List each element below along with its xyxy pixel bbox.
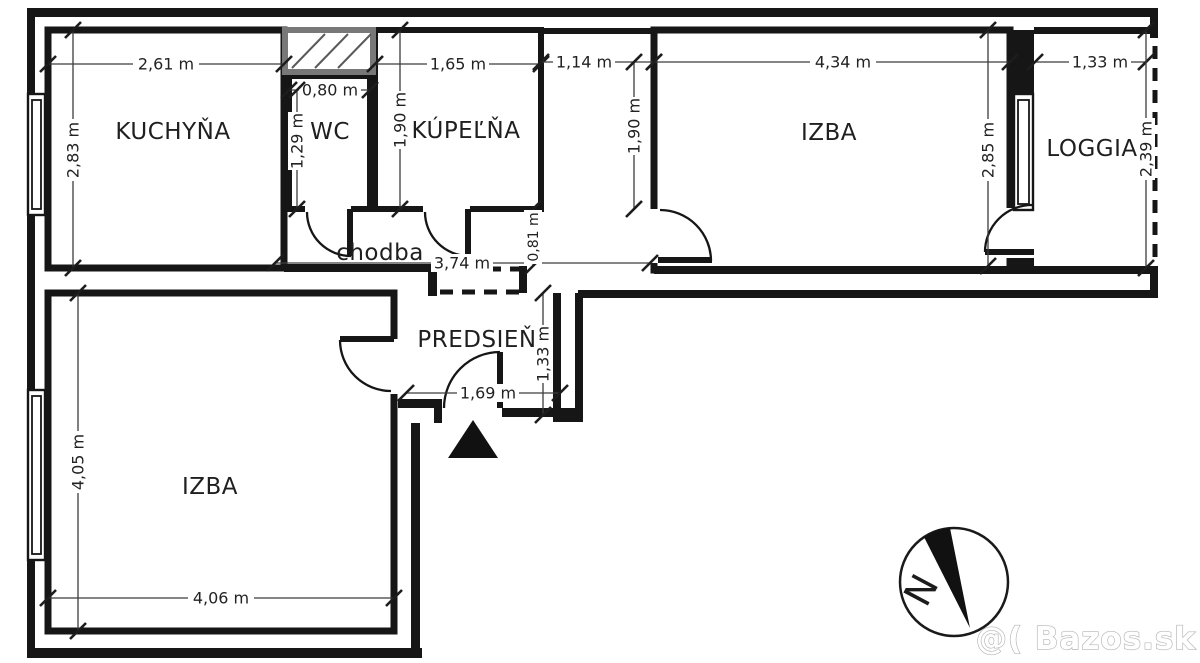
dim-label: 1,33 m (1072, 53, 1128, 72)
dim-label: 4,34 m (815, 53, 871, 72)
room-label-kupelna: KÚPEĽŇA (412, 116, 521, 144)
dim-kupelna-height: 1,90 m (391, 22, 410, 217)
izba-dolna-door-swing-arc (340, 340, 391, 391)
izba-dolna-door (340, 336, 394, 391)
dim-chodba-width: 0,81 m (524, 201, 542, 274)
dim-label: 1,90 m (391, 92, 410, 148)
watermark-text: @( Bazos.sk (976, 621, 1197, 657)
dim-label: 1,90 m (625, 98, 644, 154)
room-label-izba-horna: IZBA (801, 120, 857, 146)
izba-dolna-window-glass (32, 396, 41, 554)
dim-label: 3,74 m (434, 254, 490, 273)
entrance-arrow (448, 420, 498, 458)
north-compass: N (895, 528, 1008, 636)
kupelna-door-opening (423, 203, 470, 214)
wc-door-opening (305, 203, 351, 214)
dim-label: 2,83 m (64, 122, 83, 178)
floor-plan-page: 2,61 m 2,83 m 0,80 m 1,29 m 1,65 m (0, 0, 1200, 663)
dim-loggia-height: 2,39 m (1137, 22, 1156, 276)
kupelna-door-leaf (465, 209, 471, 256)
izba-horna-door-leaf (658, 257, 712, 263)
dim-kuchyna-width: 2,61 m (40, 55, 292, 74)
izba-dolna-window (28, 390, 45, 560)
dim-label: 0,81 m (526, 212, 542, 261)
room-izba-dolna-outline (48, 293, 394, 631)
doors (307, 205, 1034, 408)
dim-loggia-width: 1,33 m (1027, 53, 1154, 72)
dim-label: 1,29 m (288, 113, 307, 169)
room-label-chodba: chodba (336, 240, 424, 266)
loggia-window-glass (1018, 100, 1029, 204)
dim-koridor-width: 1,14 m (533, 53, 662, 72)
dim-koridor-height: 1,90 m (625, 54, 644, 217)
loggia-door-leaf (985, 249, 1034, 255)
izba-dolna-door-opening (386, 339, 398, 394)
dim-kupelna-width: 1,65 m (367, 55, 549, 74)
izba-horna-door (658, 210, 712, 263)
dim-label: 1,65 m (430, 55, 486, 74)
dim-label: 4,05 m (69, 434, 88, 490)
room-label-kuchyna: KUCHYŇA (115, 117, 230, 145)
installation-shaft (285, 30, 373, 72)
shaft-box (285, 30, 373, 72)
room-label-izba-dolna: IZBA (182, 474, 238, 500)
room-label-loggia: LOGGIA (1046, 136, 1137, 162)
dim-label: 1,69 m (460, 384, 516, 403)
dim-kuchyna-height: 2,83 m (64, 22, 83, 276)
dim-label: 2,61 m (138, 55, 194, 74)
dim-predsien-height: 1,33 m (534, 285, 553, 423)
izba-horna-door-swing-arc (660, 210, 711, 261)
door-openings (305, 203, 1036, 394)
dim-izba-horna-height: 2,85 m (979, 22, 998, 274)
room-label-wc: WC (310, 119, 350, 145)
dim-label: 2,39 m (1137, 121, 1156, 177)
dim-izba-dolna-width: 4,06 m (40, 589, 402, 608)
kupelna-door-swing-arc (425, 212, 469, 256)
dim-label: 0,80 m (302, 81, 358, 100)
kuchyna-window-glass (32, 100, 41, 209)
room-label-predsien: PREDSIEŇ (417, 325, 536, 353)
floor-plan-drawing: 2,61 m 2,83 m 0,80 m 1,29 m 1,65 m (0, 0, 1200, 663)
dim-izba-dolna-height: 4,05 m (69, 285, 88, 639)
dim-label: 1,14 m (556, 53, 612, 72)
dim-label: 2,85 m (979, 122, 998, 178)
dim-izba-horna-width: 4,34 m (646, 53, 1018, 72)
dim-label: 4,06 m (193, 589, 249, 608)
kupelna-door (425, 209, 471, 256)
izba-dolna-door-leaf (340, 336, 394, 342)
kuchyna-window (28, 94, 45, 215)
loggia-window (1014, 94, 1033, 210)
